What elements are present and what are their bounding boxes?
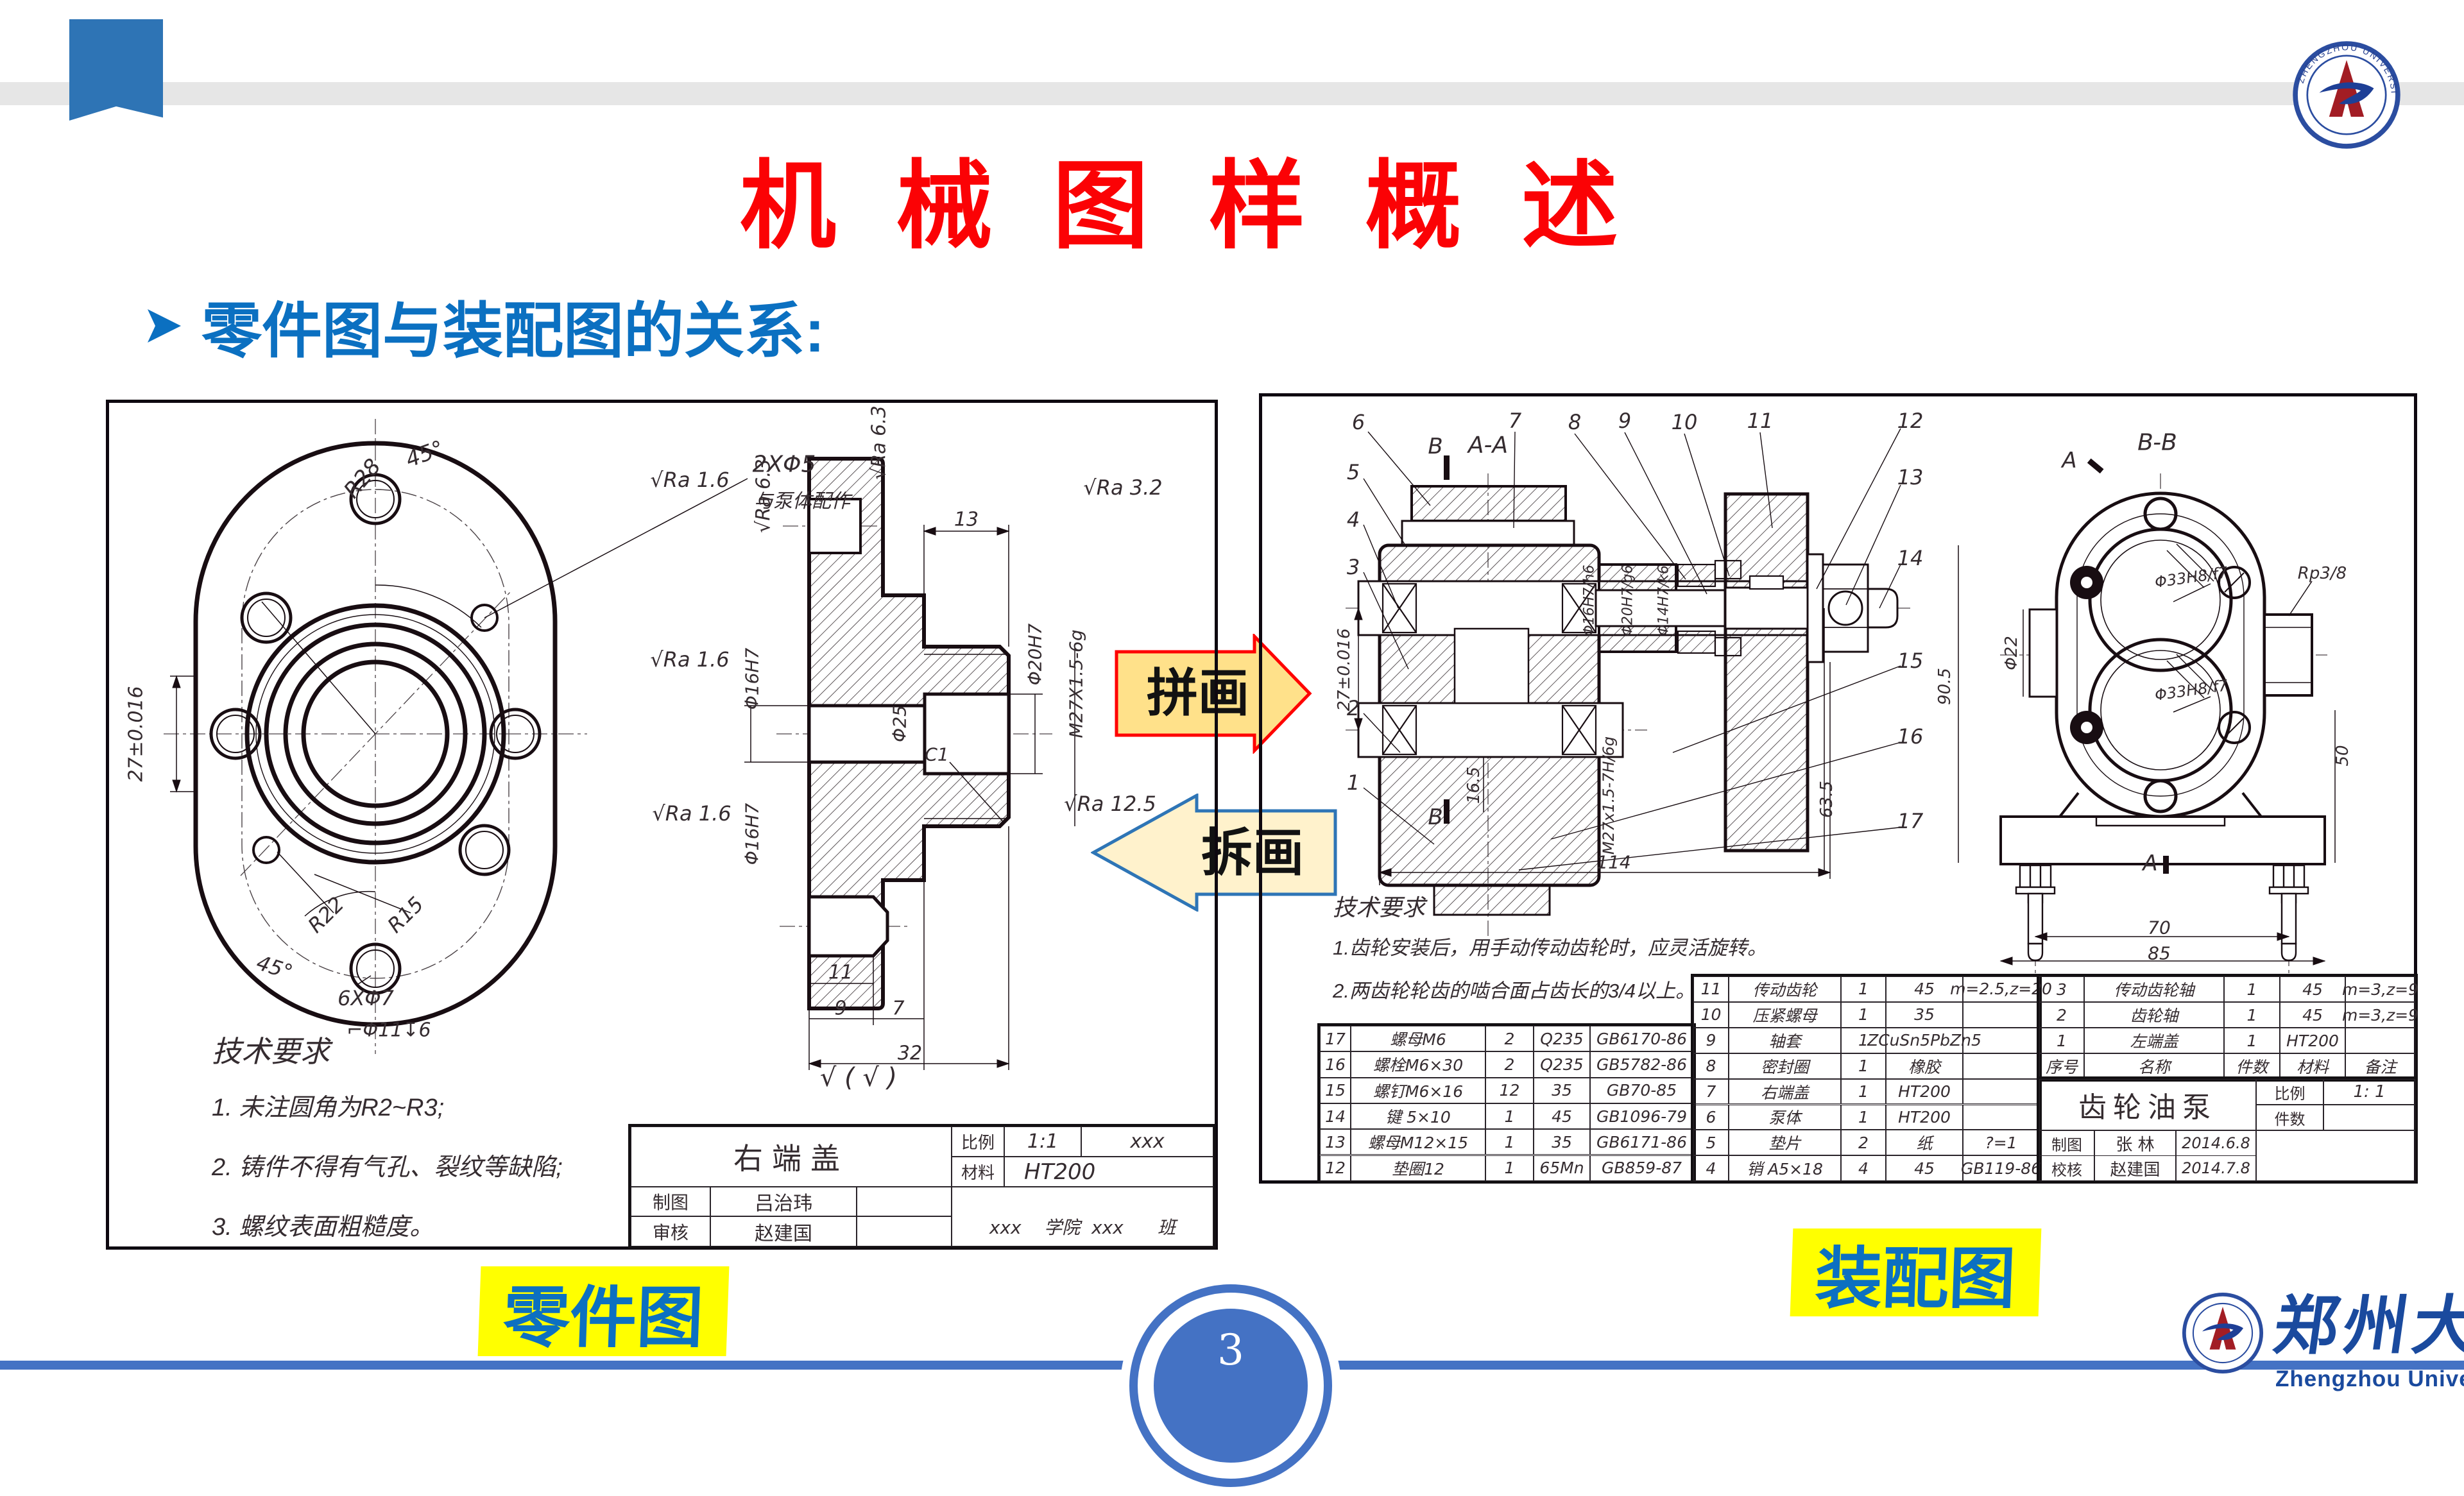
- parts-cell: 13: [1320, 1129, 1351, 1155]
- parts-cell: [1963, 1079, 2039, 1105]
- cad-annotation: 13: [954, 509, 979, 531]
- university-seal-top: ZHENGZHOU UNIVERSITY: [2292, 40, 2401, 149]
- parts-cell: [1963, 1053, 2039, 1079]
- parts-cell: 1: [1485, 1129, 1534, 1155]
- checked-date-cell: 2014.7.8: [2176, 1155, 2256, 1181]
- parts-cell: 件数: [2224, 1053, 2280, 1079]
- parts-cell: 右端盖: [1729, 1079, 1841, 1105]
- tech-requirements-left: 技术要求 1. 未注圆角为R2~R3; 2. 铸件不得有气孔、裂纹等缺陷; 3.…: [212, 1028, 563, 1266]
- parts-cell: GB6170-86: [1590, 1026, 1693, 1051]
- parts-cell: 6: [1693, 1105, 1729, 1130]
- parts-cell: 14: [1320, 1103, 1351, 1129]
- cad-annotation: A: [2062, 448, 2076, 473]
- parts-cell: GB1096-79: [1590, 1103, 1693, 1129]
- product-name-cell: 齿轮油泵: [2039, 1079, 2256, 1130]
- parts-cell: 10: [1693, 1002, 1729, 1028]
- cad-annotation: √Ra 3.2: [1083, 475, 1162, 500]
- cad-annotation: 6: [1352, 410, 1365, 434]
- parts-cell: 螺母M6: [1351, 1026, 1485, 1051]
- parts-cell: 1: [1841, 1053, 1886, 1079]
- cad-annotation: 9: [1618, 409, 1631, 433]
- parts-cell: 纸: [1886, 1130, 1963, 1155]
- bookmark-ribbon: [69, 19, 163, 121]
- parts-cell: 12: [1485, 1078, 1534, 1103]
- parts-cell: 4: [1693, 1155, 1729, 1181]
- bullet-text: 零件图与装配图的关系:: [201, 282, 825, 370]
- cad-annotation: 5: [1347, 460, 1360, 484]
- parts-cell: m=3,z=9: [2345, 976, 2415, 1002]
- cad-annotation: Φ33H8/f7: [2153, 563, 2229, 591]
- cad-annotation: 15: [1897, 649, 1924, 673]
- cad-annotation: 10: [1672, 410, 1698, 434]
- parts-cell: 1: [1841, 1079, 1886, 1105]
- checked-by-cell: 赵建国: [2094, 1155, 2176, 1181]
- cad-annotation: Φ16H7: [742, 648, 763, 710]
- parts-cell: 17: [1320, 1026, 1351, 1051]
- cad-annotation: √Ra 1.6: [650, 647, 729, 672]
- parts-cell: 压紧螺母: [1729, 1002, 1841, 1028]
- parts-list-mid: 11传动齿轮145m=2.5,z=2010压紧螺母1359轴套1ZCuSn5Pb…: [1691, 974, 2042, 1184]
- parts-cell: Q235: [1534, 1026, 1590, 1051]
- cad-annotation: B: [1428, 434, 1442, 459]
- parts-cell: 序号: [2039, 1053, 2084, 1079]
- parts-cell: 1: [1841, 1105, 1886, 1130]
- cad-annotation: Φ20H7: [1025, 624, 1046, 686]
- parts-cell: 垫圈12: [1351, 1155, 1485, 1181]
- parts-cell: 9: [1693, 1028, 1729, 1053]
- empty-cell: [857, 1216, 952, 1246]
- parts-cell: m=2.5,z=20: [1963, 976, 2039, 1002]
- assembly-title-block: 齿轮油泵 比例 1: 1 件数 制图 张 林 2014.6.8 校核 赵建国 2…: [2037, 1076, 2418, 1184]
- label-assembly-drawing: 装配图: [1790, 1228, 2042, 1316]
- scale-extra-cell: xxx: [1081, 1126, 1213, 1157]
- parts-cell: HT200: [1886, 1105, 1963, 1130]
- parts-cell: 16: [1320, 1051, 1351, 1077]
- parts-cell: GB859-87: [1590, 1155, 1693, 1181]
- empty-cell: [857, 1187, 952, 1216]
- cad-annotation: 70: [2148, 917, 2171, 939]
- parts-cell: 45: [2280, 976, 2345, 1002]
- parts-cell: 35: [1886, 1002, 1963, 1028]
- qty-label-cell: 件数: [2256, 1105, 2323, 1130]
- page-number-badge: 3: [1154, 1309, 1308, 1463]
- cad-annotation: 90.5: [1935, 668, 1955, 705]
- cad-annotation: 114: [1596, 852, 1630, 873]
- parts-cell: HT200: [1886, 1079, 1963, 1105]
- cad-annotation: 3: [1347, 555, 1360, 579]
- scale-value-cell: 1: 1: [2323, 1079, 2415, 1105]
- parts-cell: 7: [1693, 1079, 1729, 1105]
- parts-cell: 密封圈: [1729, 1053, 1841, 1079]
- cad-annotation: Φ25: [889, 705, 911, 742]
- parts-cell: 传动齿轮轴: [2084, 976, 2224, 1002]
- cad-annotation: 63.5: [1817, 781, 1836, 818]
- cad-annotation: Φ16H7/h6: [1582, 565, 1598, 636]
- cad-annotation: 16: [1897, 724, 1924, 749]
- parts-cell: 销 A5×18: [1729, 1155, 1841, 1181]
- parts-cell: 5: [1693, 1130, 1729, 1155]
- parts-cell: 2: [1841, 1130, 1886, 1155]
- parts-cell: 名称: [2084, 1053, 2224, 1079]
- assembly-drawing-frame: 6789101112131415161754321BA-AB27±0.01616…: [1259, 393, 2417, 1184]
- cad-annotation: 1: [1347, 770, 1360, 795]
- cad-annotation: 11: [828, 962, 853, 984]
- tech-line: 1. 未注圆角为R2~R3;: [212, 1087, 563, 1123]
- empty-cell: [2256, 1130, 2415, 1181]
- cad-annotation: 50: [2333, 745, 2352, 766]
- cad-annotation: 45°: [253, 950, 296, 985]
- cad-annotation: 11: [1747, 409, 1774, 433]
- cad-annotation: 6XΦ7: [338, 986, 394, 1010]
- parts-cell: 45: [1534, 1103, 1590, 1129]
- scale-label-cell: 比例: [2256, 1079, 2323, 1105]
- parts-cell: [2345, 1028, 2415, 1053]
- cad-annotation: 85: [2148, 943, 2171, 964]
- drawn-label-cell: 制图: [631, 1187, 710, 1216]
- parts-cell: 螺钉M6×16: [1351, 1078, 1485, 1103]
- parts-cell: [1963, 1028, 2039, 1053]
- parts-cell: 1: [1485, 1155, 1534, 1181]
- university-logo: 郑州大学 Zhengzhou University: [2182, 1273, 2464, 1392]
- bullet-row: 零件图与装配图的关系:: [146, 287, 825, 364]
- cad-annotation: M27X1.5-6g: [1066, 629, 1087, 738]
- cad-annotation: Φ33H8/f7: [2153, 676, 2229, 704]
- parts-cell: 1: [1841, 1002, 1886, 1028]
- parts-cell: 键 5×10: [1351, 1103, 1485, 1129]
- parts-cell: 备注: [2345, 1053, 2415, 1079]
- cad-annotation: 12: [1897, 409, 1924, 433]
- parts-cell: 65Mn: [1534, 1155, 1590, 1181]
- parts-cell: 8: [1693, 1053, 1729, 1079]
- parts-cell: 橡胶: [1886, 1053, 1963, 1079]
- cad-annotation: A-A: [1468, 432, 1508, 459]
- org-cell: xxx 学院 xxx 班: [952, 1187, 1213, 1246]
- parts-cell: 垫片: [1729, 1130, 1841, 1155]
- part-name-cell: 右端盖: [631, 1126, 952, 1187]
- scale-value-cell: 1:1: [1004, 1126, 1081, 1157]
- parts-cell: GB70-85: [1590, 1078, 1693, 1103]
- parts-cell: HT200: [2280, 1028, 2345, 1053]
- cad-annotation: Φ14H7/k6: [1656, 565, 1672, 636]
- parts-cell: 2: [1485, 1026, 1534, 1051]
- parts-list-right: 3传动齿轮轴145m=3,z=92齿轮轴145m=3,z=91左端盖1HT200…: [2037, 974, 2418, 1082]
- drawn-label-cell: 制图: [2039, 1130, 2094, 1156]
- parts-cell: 35: [1534, 1129, 1590, 1155]
- parts-cell: 1: [1841, 976, 1886, 1002]
- cad-annotation: √Ra 1.6: [650, 468, 729, 492]
- cad-annotation: √Ra 6.3: [868, 405, 891, 480]
- part-drawing-frame: 45°2XΦ5与泵体配作R28√Ra 1.627±0.016R22R156XΦ7…: [106, 400, 1218, 1250]
- material-label-cell: 材料: [952, 1157, 1004, 1187]
- parts-cell: 传动齿轮: [1729, 976, 1841, 1002]
- parts-cell: 35: [1534, 1078, 1590, 1103]
- cad-annotation: Φ22: [2002, 636, 2021, 670]
- university-seal-bottom: [2182, 1292, 2264, 1374]
- cad-annotation: √Ra 6.3: [753, 459, 775, 533]
- top-gray-band: [0, 82, 2464, 105]
- tech-line: 3. 螺纹表面粗糙度。: [212, 1207, 563, 1242]
- parts-cell: 2: [1485, 1051, 1534, 1077]
- cad-annotation: Rp3/8: [2298, 564, 2347, 583]
- cad-annotation: 7: [1509, 409, 1521, 433]
- parts-cell: GB119-86: [1963, 1155, 2039, 1181]
- parts-cell: 螺母M12×15: [1351, 1129, 1485, 1155]
- page-number: 3: [1217, 1325, 1244, 1375]
- cad-annotation: M27x1.5-7H/6g: [1600, 736, 1618, 854]
- parts-cell: GB6171-86: [1590, 1129, 1693, 1155]
- cad-annotation: 32: [898, 1042, 922, 1065]
- cad-annotation: 14: [1897, 546, 1924, 570]
- drawn-by-cell: 吕治玮: [710, 1187, 857, 1216]
- parts-cell: [1963, 1105, 2039, 1130]
- checked-label-cell: 审核: [631, 1216, 710, 1246]
- parts-cell: 2: [2039, 1002, 2084, 1028]
- checked-by-cell: 赵建国: [710, 1216, 857, 1246]
- cad-annotation: Φ20H7/g6: [1620, 565, 1636, 636]
- parts-cell: 3: [2039, 976, 2084, 1002]
- parts-cell: ?=1: [1963, 1130, 2039, 1155]
- parts-cell: ZCuSn5PbZn5: [1886, 1028, 1963, 1053]
- parts-cell: 1: [2039, 1028, 2084, 1053]
- cad-annotation: 9: [834, 998, 846, 1020]
- parts-cell: [1963, 1002, 2039, 1028]
- material-value-cell: HT200: [1004, 1157, 1213, 1187]
- cad-annotation: C1: [925, 744, 948, 765]
- cad-annotation: √Ra 12.5: [1064, 792, 1156, 816]
- cad-annotation: 16.5: [1464, 767, 1484, 804]
- cad-annotation: R28: [339, 454, 386, 504]
- checked-label-cell: 校核: [2039, 1155, 2094, 1181]
- cad-annotation: 27±0.016: [125, 686, 148, 781]
- parts-cell: 泵体: [1729, 1105, 1841, 1130]
- parts-cell: 45: [2280, 1002, 2345, 1028]
- parts-cell: 4: [1841, 1155, 1886, 1181]
- cad-annotation: R22: [303, 892, 348, 937]
- cad-annotation: √ ( √ ): [820, 1063, 897, 1092]
- cad-annotation: 4: [1347, 507, 1360, 532]
- parts-cell: GB5782-86: [1590, 1051, 1693, 1077]
- parts-list-left: 17螺母M62Q235GB6170-8616螺栓M6×302Q235GB5782…: [1317, 1023, 1696, 1184]
- parts-cell: 1: [1485, 1103, 1534, 1129]
- logo-english-name: Zhengzhou University: [2275, 1366, 2464, 1392]
- logo-chinese-name: 郑州大学: [2269, 1273, 2464, 1366]
- parts-cell: 齿轮轴: [2084, 1002, 2224, 1028]
- parts-cell: 11: [1693, 976, 1729, 1002]
- cad-annotation: 7: [892, 998, 904, 1020]
- empty-cell: [2323, 1105, 2415, 1130]
- tech-title: 技术要求: [212, 1028, 563, 1071]
- cad-annotation: B: [1428, 804, 1442, 830]
- parts-cell: 1: [2224, 1028, 2280, 1053]
- cad-annotation: 13: [1897, 465, 1924, 489]
- parts-cell: 1: [2224, 1002, 2280, 1028]
- cad-annotation: A: [2143, 851, 2157, 876]
- parts-cell: Q235: [1534, 1051, 1590, 1077]
- bullet-arrow-icon: [146, 305, 184, 346]
- tech-title: 技术要求: [1333, 889, 1767, 922]
- parts-cell: 45: [1886, 1155, 1963, 1181]
- parts-cell: 1: [2224, 976, 2280, 1002]
- cad-annotation: R15: [382, 892, 428, 937]
- drawn-by-cell: 张 林: [2094, 1130, 2176, 1156]
- label-part-drawing: 零件图: [478, 1266, 730, 1356]
- parts-cell: 轴套: [1729, 1028, 1841, 1053]
- tech-line: 2. 铸件不得有气孔、裂纹等缺陷;: [212, 1147, 563, 1182]
- tech-line: 1.齿轮安装后，用手动传动齿轮时，应灵活旋转。: [1333, 931, 1767, 960]
- parts-cell: 15: [1320, 1078, 1351, 1103]
- drawn-date-cell: 2014.6.8: [2176, 1130, 2256, 1156]
- scale-label-cell: 比例: [952, 1126, 1004, 1157]
- slide: { "slide": { "title": "机 械 图 样 概 述", "bu…: [0, 0, 2464, 1386]
- parts-cell: 左端盖: [2084, 1028, 2224, 1053]
- cad-annotation: 45°: [402, 436, 447, 473]
- cad-annotation: 17: [1897, 809, 1924, 833]
- cad-annotation: B-B: [2137, 430, 2177, 456]
- cad-annotation: Φ16H7: [742, 803, 763, 865]
- cad-annotation: 27±0.016: [1335, 628, 1354, 711]
- part-title-block: 右端盖 比例 1:1 xxx 材料 HT200 制图 吕治玮 审核 赵建国 xx…: [628, 1124, 1216, 1249]
- cad-annotation: 8: [1568, 410, 1581, 434]
- page-title: 机 械 图 样 概 述: [654, 128, 1720, 268]
- parts-cell: 材料: [2280, 1053, 2345, 1079]
- parts-cell: 12: [1320, 1155, 1351, 1181]
- parts-cell: 螺栓M6×30: [1351, 1051, 1485, 1077]
- cad-annotation: √Ra 1.6: [652, 801, 731, 826]
- parts-cell: m=3,z=9: [2345, 1002, 2415, 1028]
